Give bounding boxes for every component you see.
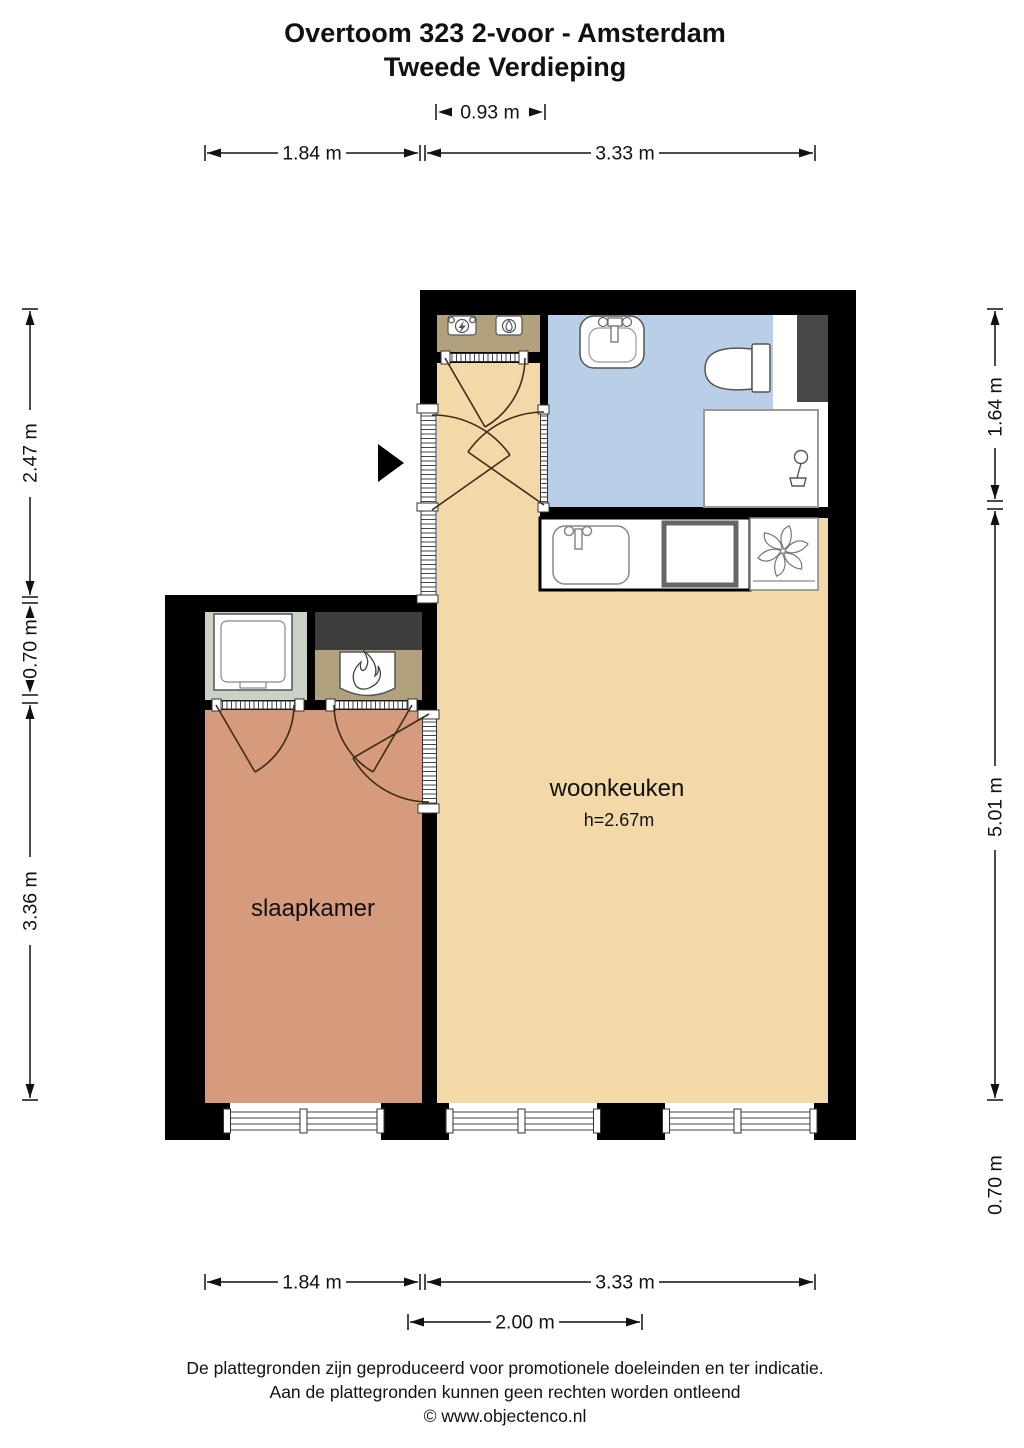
dim-top-hall: 0.93 m [436, 102, 545, 124]
shower [704, 410, 818, 507]
bedroom-door-leaf [423, 719, 437, 804]
wall-closet-divider [307, 612, 315, 700]
footer-disclaimer-line2: Aan de plattegronden kunnen geen rechten… [270, 1382, 741, 1402]
door-post [417, 503, 438, 511]
dim-left-closet: 0.70 m [20, 603, 42, 695]
wall-bathroom-bottom [540, 507, 828, 518]
door-post [417, 595, 438, 603]
wall-annex-left [165, 612, 205, 1140]
door-post [441, 351, 450, 364]
dim-bottom-bedroom: 1.84 m [205, 1272, 420, 1294]
window-segment [450, 1112, 521, 1130]
dim-label: 1.84 m [282, 1272, 342, 1294]
footer-disclaimer-line1: De plattegronden zijn geproduceerd voor … [186, 1358, 823, 1378]
window-segment [307, 1112, 380, 1130]
toilet-tank [752, 344, 770, 392]
cooktop [664, 523, 736, 585]
woonkeuken-height-label: h=2.67m [584, 810, 655, 830]
dim-right-lower: 0.70 m [985, 1155, 1007, 1215]
wall-top [420, 290, 856, 315]
toilet-bowl [705, 348, 752, 390]
bathroom-door-leaf [541, 414, 548, 503]
dim-label: 0.70 m [20, 619, 42, 679]
door-post [519, 351, 528, 364]
wall-annex-top [165, 595, 437, 612]
window-segment [740, 1112, 813, 1130]
slaapkamer-label: slaapkamer [251, 895, 375, 922]
footer: De plattegronden zijn geproduceerd voor … [186, 1358, 823, 1426]
dim-label: 3.33 m [595, 143, 655, 165]
ventilation-unit [750, 518, 818, 590]
wall-pillar-bottom-2 [597, 1103, 665, 1140]
windows [224, 1109, 818, 1133]
front-door-leaf [421, 413, 436, 503]
dim-right-living: 5.01 m [985, 509, 1007, 1100]
window-segment [230, 1112, 303, 1130]
wall-hall-left-upper [420, 315, 437, 410]
laundry-closet-door-leaf [221, 701, 295, 709]
page-title-line1: Overtoom 323 2-voor - Amsterdam [284, 18, 726, 48]
wall-divider-lower [422, 806, 437, 1103]
hall-side-window [421, 511, 436, 595]
dim-right-bathroom: 1.64 m [985, 309, 1007, 501]
kitchen-counter [540, 518, 818, 590]
door-post [417, 404, 438, 413]
hall-floor [437, 363, 540, 1103]
floor-plan-page: 0.93 m 1.84 m 3.33 m [0, 0, 1024, 1448]
bathroom-corner-strip [773, 315, 797, 402]
washing-machine [214, 614, 292, 690]
wall-divider-upper [422, 612, 437, 715]
dim-label: 3.36 m [20, 871, 42, 931]
boiler [340, 651, 395, 696]
dim-top-bedroom: 1.84 m [205, 143, 420, 165]
dim-top-living: 3.33 m [425, 143, 815, 165]
dim-label: 0.70 m [985, 1155, 1007, 1215]
dim-bottom-living: 3.33 m [425, 1272, 815, 1294]
dim-label: 5.01 m [985, 777, 1007, 837]
dim-label: 1.84 m [282, 143, 342, 165]
footer-copyright: © www.objectenco.nl [424, 1406, 587, 1426]
electric-meter-icon [448, 316, 476, 335]
dim-label: 3.33 m [595, 1272, 655, 1294]
window-segment [666, 1112, 737, 1130]
title: Overtoom 323 2-voor - Amsterdam Tweede V… [284, 18, 726, 82]
window-segment [524, 1112, 596, 1130]
wall-corner-bottom-left [165, 1103, 230, 1140]
dim-bottom-window: 2.00 m [408, 1312, 642, 1334]
dim-label: 0.93 m [460, 102, 520, 124]
woonkeuken-label: woonkeuken [549, 775, 685, 802]
door-post [418, 804, 439, 813]
shaft-block [797, 315, 828, 402]
dim-label: 2.00 m [495, 1312, 555, 1334]
dim-label: 1.64 m [985, 377, 1007, 437]
bathroom-sink [580, 316, 644, 368]
wall-corner-bottom-right [814, 1103, 856, 1140]
wall-right [828, 315, 856, 1103]
closet-shaft-block [315, 612, 422, 650]
kitchen-sink [553, 526, 629, 584]
wall-pillar-bottom-1 [381, 1103, 449, 1140]
meterkast-door-leaf [450, 354, 520, 362]
entrance-arrow-icon [378, 444, 404, 482]
dim-left-hall: 2.47 m [20, 309, 42, 597]
water-meter-icon [496, 316, 522, 335]
boiler-closet-door-leaf [335, 701, 408, 709]
dim-label: 2.47 m [20, 423, 42, 483]
floor-plan-svg: 0.93 m 1.84 m 3.33 m [0, 0, 1024, 1448]
page-title-line2: Tweede Verdieping [384, 52, 627, 82]
door-post [295, 699, 304, 711]
wall-bathroom-left-upper [540, 315, 548, 410]
dim-left-bedroom: 3.36 m [20, 703, 42, 1100]
